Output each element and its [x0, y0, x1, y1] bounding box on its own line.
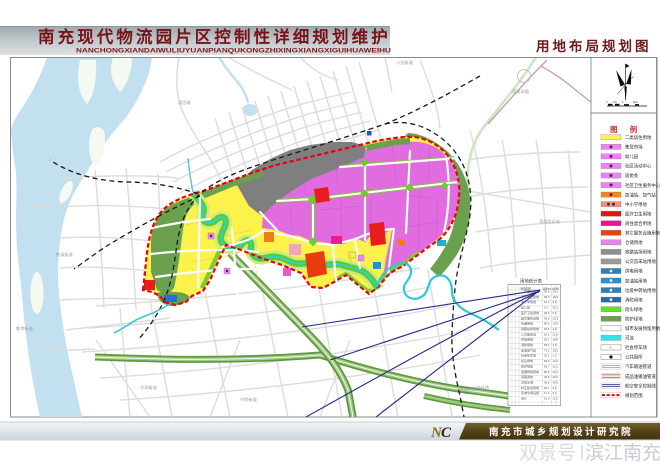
svg-text:52.1: 52.1	[544, 338, 550, 342]
svg-text:幼儿园: 幼儿园	[625, 153, 639, 160]
svg-text:12.3: 12.3	[553, 316, 559, 320]
svg-text:医疗卫生用地: 医疗卫生用地	[625, 210, 652, 217]
svg-text:社区活动中心: 社区活动中心	[625, 163, 652, 170]
svg-text:20.2: 20.2	[553, 375, 559, 379]
svg-text:城市发展预留用地: 城市发展预留用地	[625, 325, 660, 332]
svg-text:NANCHONGXIANDAIWULIUYUANPIANQU: NANCHONGXIANDAIWULIUYUANPIANQUKONGZHIXIN…	[76, 48, 392, 55]
svg-text:91.9: 91.9	[544, 397, 550, 401]
svg-text:河流: 河流	[625, 335, 634, 342]
svg-text:45.0: 45.0	[544, 381, 550, 385]
svg-text:图 例: 图 例	[610, 124, 642, 134]
svg-text:2.6: 2.6	[553, 300, 557, 304]
svg-text:小龙街道: 小龙街道	[396, 59, 414, 66]
svg-text:80.3: 80.3	[544, 322, 550, 326]
svg-text:2km: 2km	[633, 100, 638, 104]
svg-text:+: +	[609, 345, 612, 350]
svg-text:荆溪街道: 荆溪街道	[56, 251, 74, 258]
svg-text:滨江南充: 滨江南充	[585, 442, 660, 464]
svg-text:12.3: 12.3	[553, 359, 559, 363]
svg-text:供电用地: 供电用地	[521, 337, 533, 342]
svg-text:医疗卫生用地: 医疗卫生用地	[521, 310, 539, 315]
svg-text:中小学用地: 中小学用地	[625, 201, 648, 208]
svg-text:汽车输油管道: 汽车输油管道	[625, 363, 652, 370]
svg-text:潆溪货运站: 潆溪货运站	[539, 218, 560, 225]
svg-text:1.7: 1.7	[553, 354, 557, 358]
svg-text:垃圾中转站用地: 垃圾中转站用地	[625, 287, 656, 294]
svg-text:华凤街道: 华凤街道	[140, 384, 158, 391]
svg-text:公交首末站: 公交首末站	[521, 331, 536, 336]
svg-text:村庄建设用地: 村庄建设用地	[521, 385, 539, 390]
svg-text:23.5: 23.5	[553, 381, 559, 385]
svg-text:28.3: 28.3	[544, 311, 550, 315]
svg-text:铁路站场用地: 铁路站场用地	[521, 326, 539, 331]
svg-text:供电用地: 供电用地	[625, 268, 643, 275]
svg-text:发展预留用地: 发展预留用地	[521, 369, 539, 374]
svg-text:规划范围: 规划范围	[625, 392, 643, 399]
svg-text:其它服务设施用地: 其它服务设施用地	[625, 230, 660, 237]
svg-text:23.1: 23.1	[553, 370, 559, 374]
svg-text:用地布局规划图: 用地布局规划图	[536, 38, 652, 54]
svg-text:38.3: 38.3	[544, 295, 550, 299]
svg-text:仓储用地: 仓储用地	[625, 239, 643, 246]
svg-text:双景号: 双景号	[519, 443, 576, 464]
svg-text:社会停车场: 社会停车场	[521, 353, 536, 358]
svg-text:滨西堰: 滨西堰	[178, 99, 191, 106]
svg-text:社会停车场: 社会停车场	[625, 344, 648, 351]
svg-text:12.4: 12.4	[553, 322, 559, 326]
svg-text:82.9: 82.9	[544, 359, 550, 363]
svg-text:17.2: 17.2	[544, 391, 550, 395]
svg-text:消防用地: 消防用地	[625, 296, 643, 303]
svg-text:2.5: 2.5	[553, 343, 557, 347]
svg-text:幼儿园: 幼儿园	[521, 305, 530, 310]
svg-text:仓储用地: 仓储用地	[521, 321, 533, 326]
svg-text:二类居住用地: 二类居住用地	[625, 134, 652, 141]
svg-text:32.1: 32.1	[544, 354, 550, 358]
svg-text:合计: 合计	[521, 396, 527, 401]
svg-text:区域交通设施: 区域交通设施	[521, 390, 539, 395]
svg-text:69.3: 69.3	[544, 370, 550, 374]
svg-text:26.4: 26.4	[544, 290, 550, 294]
svg-text:94.6: 94.6	[544, 316, 550, 320]
svg-text:22.1: 22.1	[553, 364, 559, 368]
svg-text:21.1: 21.1	[553, 306, 559, 310]
svg-text:街头绿地: 街头绿地	[625, 306, 643, 313]
svg-text:书院街道: 书院街道	[240, 396, 258, 403]
svg-text:15.5: 15.5	[553, 295, 559, 299]
svg-text:道路用地: 道路用地	[521, 374, 533, 379]
svg-text:社区卫生服务中心: 社区卫生服务中心	[625, 182, 660, 189]
svg-text:84.1: 84.1	[544, 386, 550, 390]
svg-text:6.6: 6.6	[553, 311, 557, 315]
svg-text:商住混合用地: 商住混合用地	[625, 220, 652, 227]
svg-text:加油站、加气站: 加油站、加气站	[625, 191, 656, 198]
svg-text:61.3: 61.3	[544, 300, 550, 304]
svg-text:21.8: 21.8	[553, 332, 559, 336]
svg-text:南充市城乡规划设计研究院: 南充市城乡规划设计研究院	[489, 426, 633, 438]
svg-text:6.2: 6.2	[544, 306, 548, 310]
svg-text:65.4: 65.4	[544, 343, 550, 347]
svg-text:0.5: 0.5	[613, 100, 617, 104]
svg-text:用地统计表: 用地统计表	[520, 278, 543, 285]
svg-text:消防用地: 消防用地	[521, 342, 533, 347]
svg-text:成品油输油管道: 成品油输油管道	[625, 373, 656, 380]
svg-text:4.6: 4.6	[553, 327, 557, 331]
svg-text:南充现代物流园片区控制性详细规划维护: 南充现代物流园片区控制性详细规划维护	[38, 27, 391, 47]
svg-text:C: C	[441, 425, 452, 441]
svg-text:集贸市场: 集贸市场	[625, 144, 643, 151]
svg-text:河流水域: 河流水域	[521, 380, 533, 385]
svg-text:防护绿地: 防护绿地	[625, 315, 643, 322]
svg-text:62.5: 62.5	[544, 327, 550, 331]
svg-text:其它服务设施: 其它服务设施	[521, 315, 539, 320]
svg-text:40.5: 40.5	[544, 375, 550, 379]
svg-text:15.2: 15.2	[553, 348, 559, 352]
svg-text:防护绿地: 防护绿地	[521, 363, 533, 368]
svg-text:14.1: 14.1	[553, 290, 559, 294]
svg-text:潆溪场镇: 潆溪场镇	[512, 88, 529, 95]
svg-text:69.7: 69.7	[544, 364, 550, 368]
svg-text:18.8: 18.8	[553, 338, 559, 342]
svg-text:6.2: 6.2	[553, 391, 557, 395]
svg-text:11.5: 11.5	[553, 397, 559, 401]
svg-text:公共厕所: 公共厕所	[625, 354, 643, 361]
svg-text:公交首末站用地: 公交首末站用地	[625, 258, 656, 265]
svg-text:居委会: 居委会	[625, 172, 639, 179]
svg-text:铁路站场用地: 铁路站场用地	[625, 249, 652, 256]
svg-text:加油加气站: 加油加气站	[521, 347, 536, 352]
svg-text:62.1: 62.1	[544, 332, 550, 336]
svg-text:都京街道: 都京街道	[16, 325, 34, 332]
svg-text:3.3: 3.3	[553, 386, 557, 390]
svg-text:街头绿地: 街头绿地	[521, 358, 533, 363]
svg-text:加油站用地: 加油站用地	[625, 277, 648, 284]
svg-text:航空安全控制线: 航空安全控制线	[625, 382, 656, 389]
svg-text:73.2: 73.2	[544, 348, 550, 352]
